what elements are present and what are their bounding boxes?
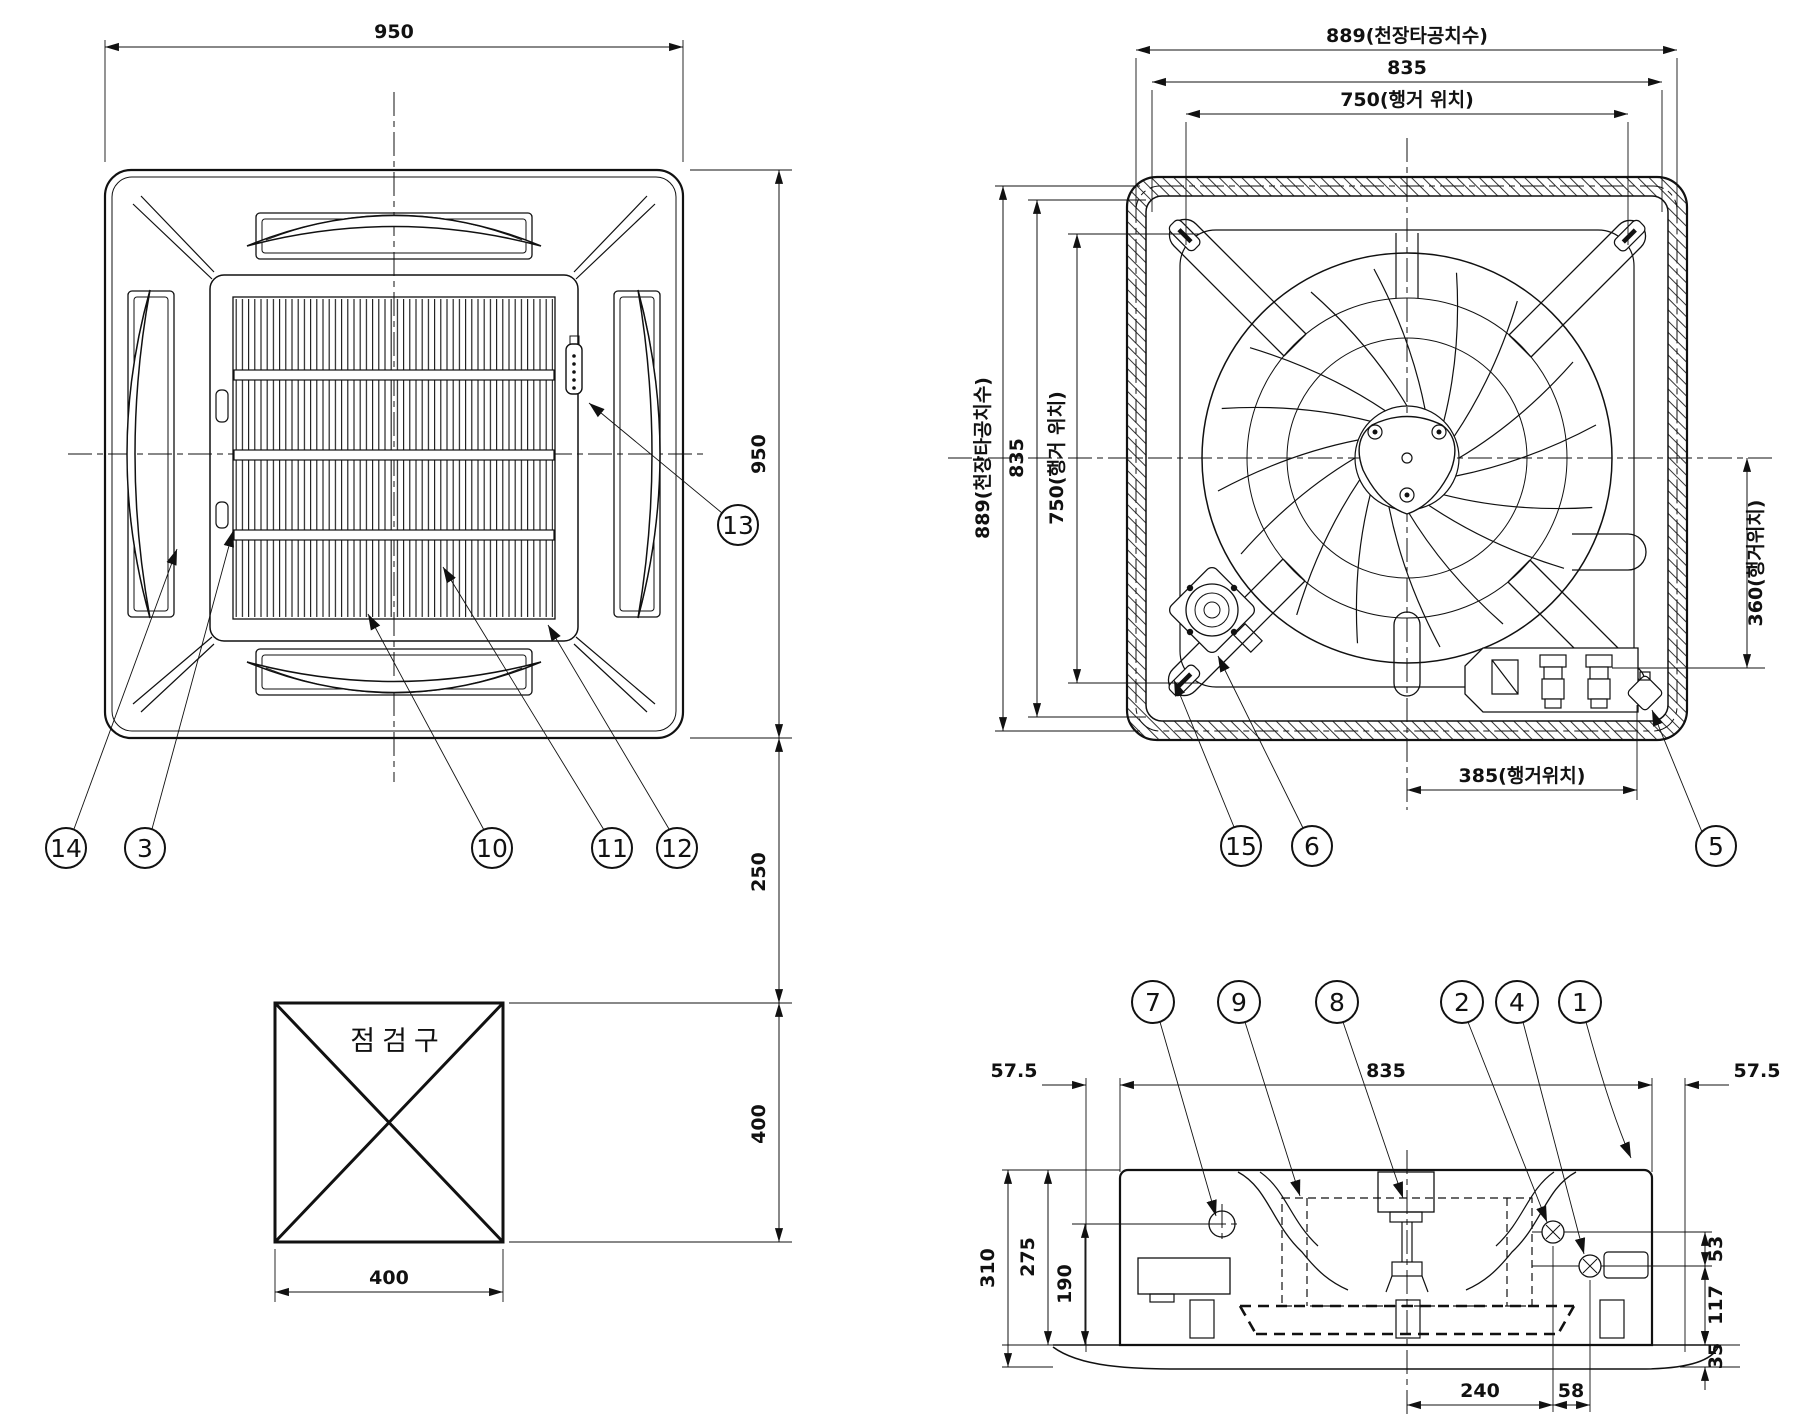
dim-label-950-top: 950 — [374, 21, 414, 43]
callout-1: 1 — [1559, 981, 1601, 1023]
dim-label-58: 58 — [1558, 1380, 1584, 1402]
dim-label-117: 117 — [1705, 1285, 1727, 1325]
dim-label-889-left: 889(천장타공치수) — [972, 377, 994, 539]
dim-label-310: 310 — [977, 1248, 999, 1288]
suction-grille — [210, 275, 578, 641]
dim-label-889-top: 889(천장타공치수) — [1326, 25, 1488, 47]
callout-3: 3 — [125, 828, 165, 868]
cassette-ac-installation-drawing: 950 950 250 400 점검구 400 14 3 — [0, 0, 1809, 1428]
callout-14: 14 — [46, 828, 86, 868]
dim-label-835-left: 835 — [1006, 438, 1028, 478]
svg-text:8: 8 — [1329, 988, 1345, 1017]
dim-label-835-side: 835 — [1366, 1060, 1406, 1082]
dim-label-275: 275 — [1017, 1237, 1039, 1277]
display-receiver — [566, 336, 582, 394]
svg-text:12: 12 — [661, 834, 693, 863]
callout-7: 7 — [1132, 981, 1174, 1023]
piping-connections — [1465, 648, 1663, 712]
dim-label-835-top: 835 — [1387, 57, 1427, 79]
svg-text:5: 5 — [1708, 832, 1724, 861]
callout-6: 6 — [1292, 826, 1332, 866]
dim-label-400-bottom: 400 — [369, 1267, 409, 1289]
svg-text:9: 9 — [1231, 988, 1247, 1017]
svg-text:15: 15 — [1225, 832, 1257, 861]
dim-label-950-right: 950 — [748, 434, 770, 474]
svg-text:4: 4 — [1509, 988, 1525, 1017]
callout-2: 2 — [1441, 981, 1483, 1023]
grille-bar-2 — [234, 450, 554, 460]
dim-label-750-left: 750(행거 위치) — [1046, 391, 1068, 525]
dim-label-250: 250 — [748, 852, 770, 892]
callout-12: 12 — [657, 828, 697, 868]
grille-bar-1 — [234, 370, 554, 380]
dim-label-385: 385(행거위치) — [1459, 765, 1586, 787]
callout-5: 5 — [1696, 826, 1736, 866]
drawing-sheet: 950 950 250 400 점검구 400 14 3 — [0, 0, 1809, 1428]
svg-text:7: 7 — [1145, 988, 1161, 1017]
svg-text:1: 1 — [1572, 988, 1588, 1017]
dim-label-360: 360(행거위치) — [1745, 500, 1767, 627]
grille-latch-lower — [216, 502, 228, 528]
svg-text:14: 14 — [50, 834, 82, 863]
sheet-background — [0, 0, 1809, 1428]
dim-label-750-top: 750(행거 위치) — [1340, 89, 1474, 111]
dim-label-400-right: 400 — [748, 1104, 770, 1144]
grille-latch-upper — [216, 390, 228, 422]
dim-label-35: 35 — [1705, 1343, 1727, 1369]
dim-label-57-right: 57.5 — [1734, 1060, 1781, 1082]
svg-text:13: 13 — [722, 511, 754, 540]
callout-8: 8 — [1316, 981, 1358, 1023]
dim-label-240: 240 — [1460, 1380, 1500, 1402]
grille-bar-3 — [234, 530, 554, 540]
callout-10: 10 — [472, 828, 512, 868]
callout-11: 11 — [592, 828, 632, 868]
callout-9: 9 — [1218, 981, 1260, 1023]
svg-text:2: 2 — [1454, 988, 1470, 1017]
callout-15: 15 — [1221, 826, 1261, 866]
callout-4: 4 — [1496, 981, 1538, 1023]
callout-13: 13 — [718, 505, 758, 545]
svg-text:6: 6 — [1304, 832, 1320, 861]
dim-label-190: 190 — [1054, 1264, 1076, 1304]
svg-text:3: 3 — [137, 834, 153, 863]
svg-text:10: 10 — [476, 834, 508, 863]
svg-text:11: 11 — [596, 834, 628, 863]
inspection-label: 점검구 — [350, 1026, 446, 1057]
dim-label-57-left: 57.5 — [991, 1060, 1038, 1082]
dim-label-53: 53 — [1705, 1236, 1727, 1262]
